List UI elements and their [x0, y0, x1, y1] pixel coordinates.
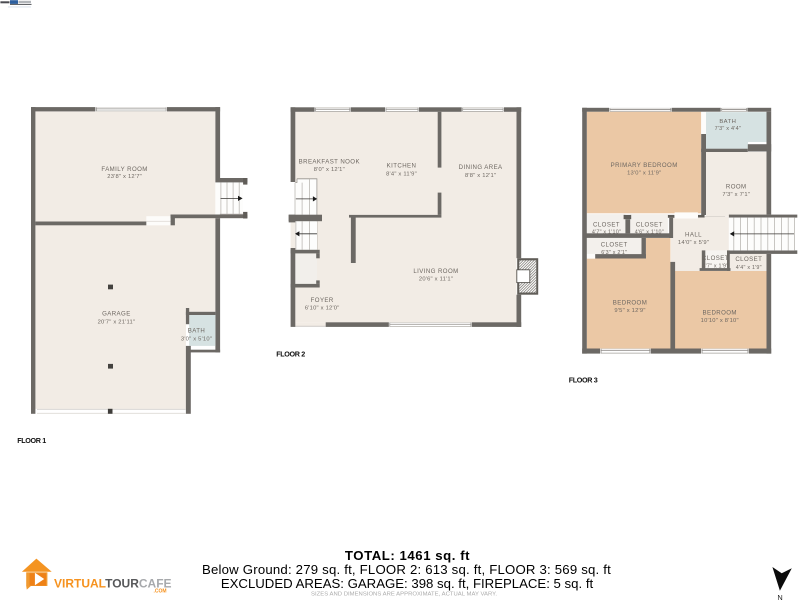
svg-text:SIZES AND DIMENSIONS ARE APPRO: SIZES AND DIMENSIONS ARE APPROXIMATE, AC…: [311, 592, 497, 598]
svg-text:EXCLUDED AREAS: GARAGE: 398 sq: EXCLUDED AREAS: GARAGE: 398 sq. ft, FIRE…: [221, 576, 594, 591]
svg-text:KITCHEN: KITCHEN: [387, 163, 417, 170]
svg-text:23'8" x 12'7": 23'8" x 12'7": [107, 174, 142, 180]
svg-text:6'3" x 2'1": 6'3" x 2'1": [601, 250, 627, 256]
svg-text:10'10" x 8'10": 10'10" x 8'10": [701, 318, 739, 324]
svg-text:CLOSET: CLOSET: [636, 222, 663, 229]
svg-text:4'7" x 1'10": 4'7" x 1'10": [592, 230, 621, 236]
svg-text:8'8" x 12'1": 8'8" x 12'1": [465, 173, 496, 179]
svg-text:CLOSET: CLOSET: [702, 255, 729, 262]
svg-text:20'6" x 11'1": 20'6" x 11'1": [419, 277, 453, 283]
svg-text:20'7" x 21'11": 20'7" x 21'11": [98, 319, 136, 325]
svg-text:3'0" x 5'10": 3'0" x 5'10": [181, 336, 212, 342]
svg-text:BATH: BATH: [719, 119, 736, 125]
svg-text:Below Ground: 279 sq. ft, FLOO: Below Ground: 279 sq. ft, FLOOR 2: 613 s…: [202, 562, 611, 577]
svg-text:4'6" x 1'10": 4'6" x 1'10": [635, 230, 664, 236]
svg-text:CLOSET: CLOSET: [735, 256, 762, 263]
svg-text:6'10" x 12'0": 6'10" x 12'0": [305, 306, 340, 312]
svg-text:14'0" x 5'9": 14'0" x 5'9": [678, 240, 709, 246]
svg-text:.COM: .COM: [153, 589, 166, 595]
svg-text:CLOSET: CLOSET: [601, 242, 628, 249]
svg-text:LIVING ROOM: LIVING ROOM: [413, 268, 458, 275]
svg-text:4'4" x 1'9": 4'4" x 1'9": [736, 265, 762, 271]
svg-text:FAMILY ROOM: FAMILY ROOM: [101, 166, 147, 173]
svg-text:9'5" x 12'9": 9'5" x 12'9": [614, 308, 645, 314]
svg-text:8'4" x 11'9": 8'4" x 11'9": [386, 171, 417, 177]
svg-text:BEDROOM: BEDROOM: [613, 299, 647, 306]
svg-text:FLOOR 3: FLOOR 3: [569, 376, 598, 385]
svg-text:TOTAL: 1461 sq. ft: TOTAL: 1461 sq. ft: [345, 548, 470, 563]
svg-text:BEDROOM: BEDROOM: [702, 310, 736, 317]
svg-text:8'0" x 12'1": 8'0" x 12'1": [314, 167, 345, 173]
svg-text:7'3" x 7'1": 7'3" x 7'1": [722, 192, 750, 198]
svg-text:BATH: BATH: [188, 327, 205, 334]
svg-text:7'3" x 4'4": 7'3" x 4'4": [715, 126, 741, 132]
svg-text:DINING AREA: DINING AREA: [459, 164, 503, 171]
svg-text:GARAGE: GARAGE: [102, 311, 131, 318]
svg-text:N: N: [777, 593, 782, 600]
svg-text:FLOOR 1: FLOOR 1: [17, 436, 46, 445]
svg-text:HALL: HALL: [685, 232, 702, 239]
svg-text:FLOOR 2: FLOOR 2: [276, 349, 305, 358]
svg-text:CLOSET: CLOSET: [593, 222, 620, 229]
svg-text:13'0" x 11'9": 13'0" x 11'9": [627, 171, 661, 177]
svg-text:PRIMARY BEDROOM: PRIMARY BEDROOM: [611, 162, 678, 169]
svg-text:4'7" x 1'9": 4'7" x 1'9": [702, 263, 728, 269]
svg-text:ROOM: ROOM: [726, 184, 747, 191]
svg-text:FOYER: FOYER: [311, 297, 334, 304]
svg-text:BREAKFAST NOOK: BREAKFAST NOOK: [299, 159, 360, 166]
